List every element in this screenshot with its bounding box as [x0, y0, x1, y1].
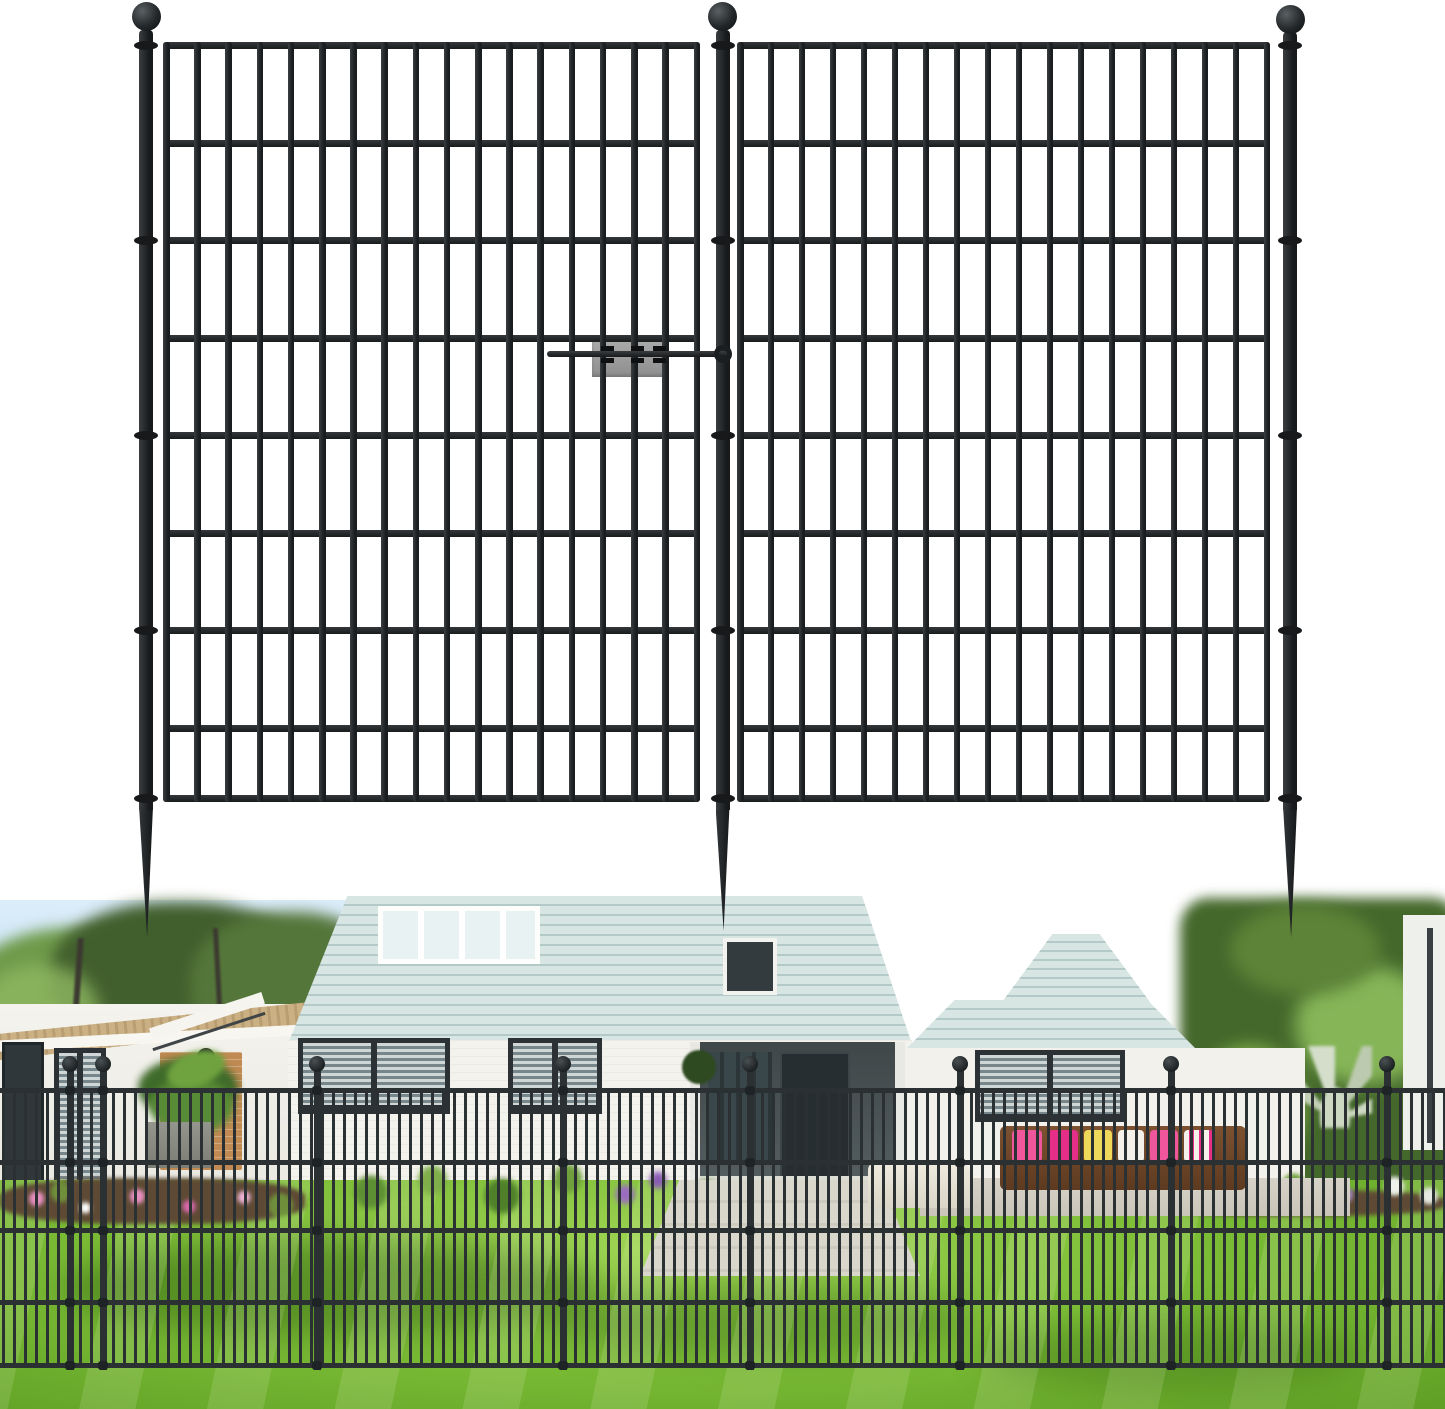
- connector-hook: [714, 345, 732, 363]
- right-post-collar: [1278, 794, 1302, 803]
- connector-clip: [653, 358, 666, 363]
- fence-rail: [163, 335, 700, 342]
- photo-fence-knuckle: [65, 1086, 75, 1095]
- photo-fence-post: [1384, 1058, 1391, 1370]
- photo-fence-knuckle: [558, 1226, 568, 1235]
- fence-bar: [1047, 42, 1054, 802]
- fence-bar: [861, 42, 868, 802]
- photo-fence-post: [957, 1058, 964, 1370]
- photo-fence-ball-finial: [555, 1056, 571, 1072]
- photo-fence-knuckle: [65, 1158, 75, 1167]
- right-post-collar: [1278, 431, 1302, 440]
- fence-rail: [737, 725, 1270, 732]
- right-post-ball-finial: [1276, 5, 1305, 34]
- hedge-right-shadow: [1230, 905, 1380, 995]
- photo-fence-knuckle: [98, 1361, 108, 1370]
- hanging-plant: [682, 1050, 716, 1084]
- photo-fence-knuckle: [312, 1226, 322, 1235]
- fence-bar: [631, 42, 638, 802]
- right-post-collar: [1278, 236, 1302, 245]
- cushion: [1084, 1130, 1112, 1162]
- entry-upstairs-window: [723, 938, 777, 995]
- right-post-collar: [1278, 41, 1302, 50]
- left-post-collar: [134, 626, 158, 635]
- photo-fence-knuckle: [1382, 1298, 1392, 1307]
- photo-fence-knuckle: [1166, 1158, 1176, 1167]
- fence-bar: [1264, 42, 1271, 802]
- photo-fence-knuckle: [558, 1298, 568, 1307]
- photo-fence-knuckle: [1382, 1226, 1392, 1235]
- fence-bar: [319, 42, 326, 802]
- photo-fence-knuckle: [65, 1226, 75, 1235]
- photo-fence-rail: [0, 1088, 1445, 1093]
- connector-clip: [631, 346, 644, 351]
- fence-rail: [163, 795, 700, 802]
- photo-fence-ball-finial: [1379, 1056, 1395, 1072]
- photo-fence-post: [747, 1058, 754, 1370]
- photo-fence-ball-finial: [309, 1056, 325, 1072]
- photo-fence-knuckle: [955, 1158, 965, 1167]
- photo-fence-knuckle: [1166, 1361, 1176, 1370]
- fence-bar: [1233, 42, 1240, 802]
- photo-fence-knuckle: [1382, 1361, 1392, 1370]
- fence-rail: [163, 530, 700, 537]
- middle-post: [716, 30, 730, 810]
- photo-fence-knuckle: [558, 1158, 568, 1167]
- photo-fence-knuckle: [98, 1086, 108, 1095]
- fence-rail: [737, 795, 1270, 802]
- cushion: [1118, 1130, 1144, 1162]
- middle-post-ball-finial: [708, 2, 737, 31]
- fence-rail: [737, 432, 1270, 439]
- fence-bar: [475, 42, 482, 802]
- photo-fence-knuckle: [98, 1298, 108, 1307]
- photo-fence-ball-finial: [1163, 1056, 1179, 1072]
- photo-fence-knuckle: [1382, 1158, 1392, 1167]
- fence-bar: [194, 42, 201, 802]
- right-gable-apex: [1002, 934, 1150, 1002]
- fence-bar: [225, 42, 232, 802]
- photo-fence-knuckle: [955, 1086, 965, 1095]
- fence-bar: [1171, 42, 1178, 802]
- fence-rail: [737, 42, 1270, 49]
- fence-bar: [506, 42, 513, 802]
- fence-bar: [1202, 42, 1209, 802]
- right-post-collar: [1278, 626, 1302, 635]
- fence-bar: [985, 42, 992, 802]
- middle-post-collar: [711, 236, 735, 245]
- photo-fence-rail: [0, 1363, 1445, 1368]
- photo-fence-knuckle: [98, 1226, 108, 1235]
- photo-fence-ball-finial: [62, 1056, 78, 1072]
- photo-fence-knuckle: [1166, 1226, 1176, 1235]
- fence-bar: [1016, 42, 1023, 802]
- connector-clip: [601, 358, 614, 363]
- right-post: [1283, 32, 1297, 810]
- middle-post-collar: [711, 431, 735, 440]
- fence-bar: [892, 42, 899, 802]
- right-gable-siding: [905, 1000, 1197, 1050]
- fence-bar: [350, 42, 357, 802]
- photo-fence-rail: [0, 1228, 1445, 1233]
- photo-fence-knuckle: [1166, 1298, 1176, 1307]
- fence-bar: [381, 42, 388, 802]
- left-post: [139, 30, 153, 810]
- photo-fence-knuckle: [745, 1086, 755, 1095]
- product-listing-image: [0, 0, 1445, 1409]
- photo-fence-knuckle: [955, 1298, 965, 1307]
- fence-bar: [923, 42, 930, 802]
- fence-rail: [163, 432, 700, 439]
- photo-fence-knuckle: [955, 1361, 965, 1370]
- left-post-collar: [134, 41, 158, 50]
- photo-fence-knuckle: [98, 1158, 108, 1167]
- fence-bar: [954, 42, 961, 802]
- photo-fence-knuckle: [745, 1226, 755, 1235]
- fence-rail: [737, 530, 1270, 537]
- cushion: [1048, 1130, 1078, 1162]
- fence-bar: [799, 42, 806, 802]
- fence-rail: [163, 42, 700, 49]
- photo-fence-knuckle: [558, 1361, 568, 1370]
- photo-fence-post: [67, 1058, 74, 1370]
- photo-fence-knuckle: [312, 1361, 322, 1370]
- photo-fence-ball-finial: [95, 1056, 111, 1072]
- fence-bar: [768, 42, 775, 802]
- connector-clip: [601, 346, 614, 351]
- fence-rail: [737, 237, 1270, 244]
- left-post-collar: [134, 236, 158, 245]
- photo-fence-knuckle: [745, 1361, 755, 1370]
- photo-fence-post: [1168, 1058, 1175, 1370]
- left-post-collar: [134, 431, 158, 440]
- photo-fence-post: [100, 1058, 107, 1370]
- photo-fence-ball-finial: [952, 1056, 968, 1072]
- fence-bar: [737, 42, 744, 802]
- fence-bar: [694, 42, 701, 802]
- middle-post-collar: [711, 626, 735, 635]
- photo-fence-knuckle: [955, 1226, 965, 1235]
- fence-bar: [537, 42, 544, 802]
- fence-rail: [737, 140, 1270, 147]
- fence-rail: [163, 140, 700, 147]
- photo-fence-knuckle: [1382, 1086, 1392, 1095]
- fence-bar: [662, 42, 669, 802]
- fence-rail: [163, 627, 700, 634]
- fence-bar: [1078, 42, 1085, 802]
- fence-bar: [600, 42, 607, 802]
- photo-fence-post: [560, 1058, 567, 1370]
- connector-clip: [631, 358, 644, 363]
- fence-rail: [737, 335, 1270, 342]
- photo-fence-knuckle: [1166, 1086, 1176, 1095]
- photo-fence-knuckle: [65, 1361, 75, 1370]
- fence-bar: [1109, 42, 1116, 802]
- photo-fence-knuckle: [558, 1086, 568, 1095]
- left-post-ball-finial: [132, 2, 161, 31]
- fence-bar: [288, 42, 295, 802]
- photo-fence-post: [314, 1058, 321, 1370]
- photo-fence-rail: [0, 1160, 1445, 1165]
- left-post-collar: [134, 794, 158, 803]
- fence-bar: [1140, 42, 1147, 802]
- photo-fence-knuckle: [312, 1086, 322, 1095]
- photo-fence-ball-finial: [742, 1056, 758, 1072]
- connector-rod: [547, 351, 729, 357]
- fence-bar: [413, 42, 420, 802]
- photo-fence-knuckle: [745, 1298, 755, 1307]
- fence-bar: [444, 42, 451, 802]
- upstairs-window: [378, 906, 540, 964]
- photo-fence-knuckle: [65, 1298, 75, 1307]
- fence-bar: [569, 42, 576, 802]
- photo-fence-rail: [0, 1300, 1445, 1305]
- middle-post-collar: [711, 41, 735, 50]
- photo-fence-knuckle: [312, 1158, 322, 1167]
- fence-bar: [830, 42, 837, 802]
- photo-fence-knuckle: [745, 1158, 755, 1167]
- fence-rail: [737, 627, 1270, 634]
- fence-bar: [257, 42, 264, 802]
- photo-fence-knuckle: [312, 1298, 322, 1307]
- fence-rail: [163, 237, 700, 244]
- middle-post-collar: [711, 794, 735, 803]
- connector-clip: [653, 346, 666, 351]
- fence-rail: [163, 725, 700, 732]
- fence-bar: [163, 42, 170, 802]
